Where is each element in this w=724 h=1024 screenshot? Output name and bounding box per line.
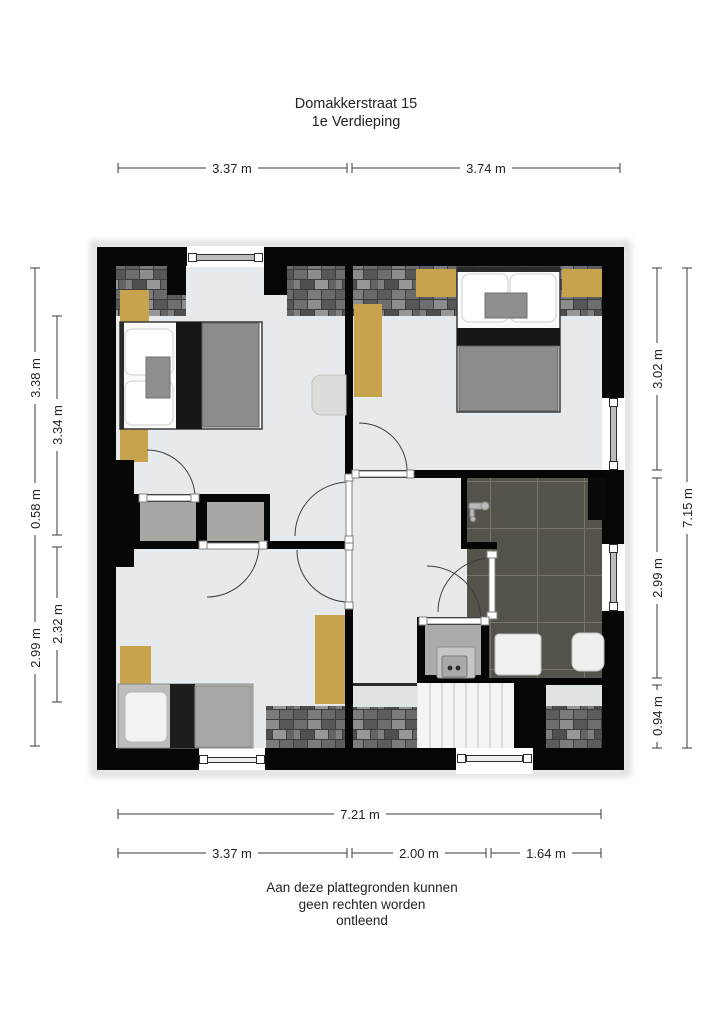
svg-text:3.38 m: 3.38 m — [28, 358, 43, 398]
svg-text:ontleend: ontleend — [336, 913, 388, 928]
svg-text:2.00 m: 2.00 m — [399, 846, 439, 861]
svg-text:0.94 m: 0.94 m — [650, 696, 665, 736]
svg-text:1.64 m: 1.64 m — [526, 846, 566, 861]
svg-text:Domakkerstraat 15: Domakkerstraat 15 — [295, 96, 418, 112]
svg-text:3.02 m: 3.02 m — [650, 349, 665, 389]
svg-text:geen rechten worden: geen rechten worden — [299, 897, 426, 912]
svg-text:7.21 m: 7.21 m — [340, 807, 380, 822]
svg-text:3.37 m: 3.37 m — [212, 161, 252, 176]
svg-text:2.99 m: 2.99 m — [650, 558, 665, 598]
svg-text:2.32 m: 2.32 m — [50, 604, 65, 644]
svg-text:3.74 m: 3.74 m — [466, 161, 506, 176]
svg-text:2.99 m: 2.99 m — [28, 628, 43, 668]
svg-text:0.58 m: 0.58 m — [28, 489, 43, 529]
svg-text:3.34 m: 3.34 m — [50, 405, 65, 445]
svg-text:1e Verdieping: 1e Verdieping — [312, 114, 401, 130]
svg-text:7.15 m: 7.15 m — [680, 488, 695, 528]
svg-text:Aan deze plattegronden kunnen: Aan deze plattegronden kunnen — [266, 880, 457, 895]
svg-text:3.37 m: 3.37 m — [212, 846, 252, 861]
